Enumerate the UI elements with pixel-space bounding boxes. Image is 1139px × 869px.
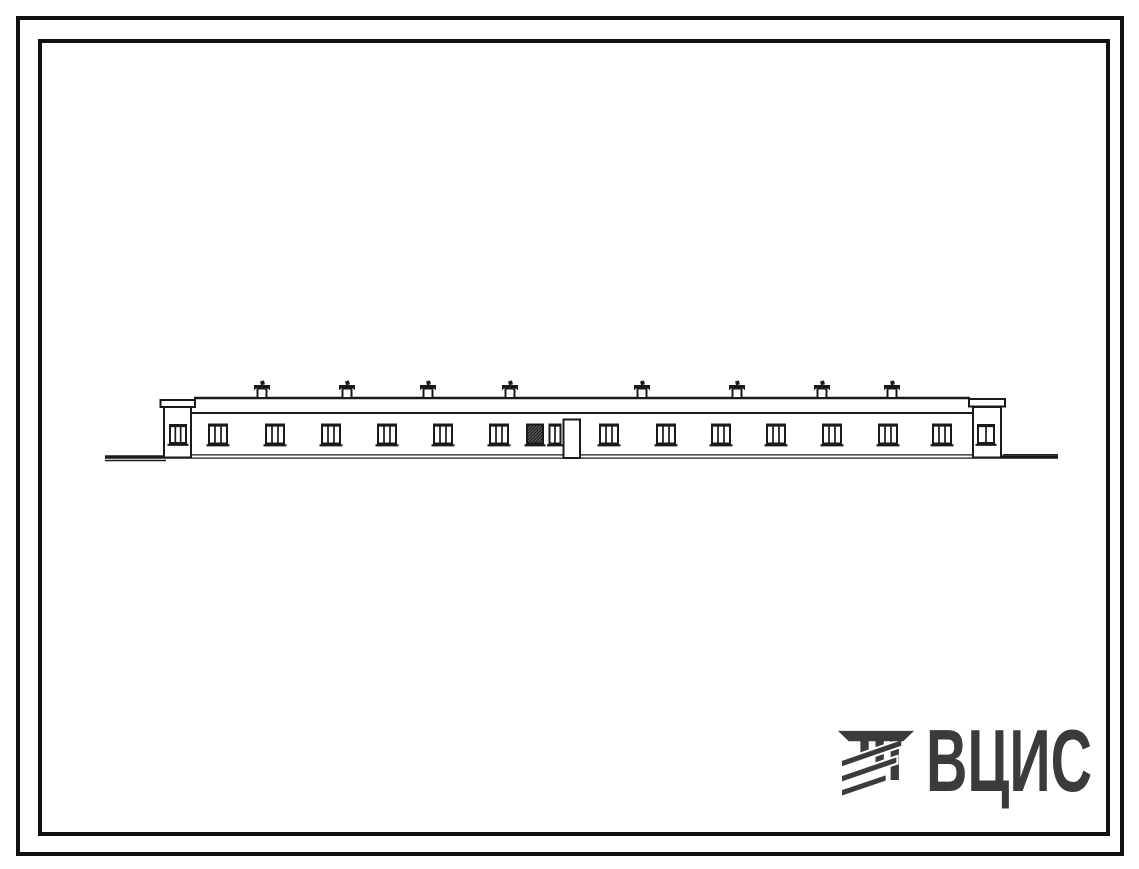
roof-vent-knob bbox=[426, 380, 431, 385]
roof-vent-body bbox=[638, 389, 647, 399]
window bbox=[266, 425, 284, 444]
roof-vent-body bbox=[506, 389, 515, 399]
roof-vent-body bbox=[258, 389, 267, 399]
vcis-logo: ВЦИС bbox=[838, 722, 1098, 812]
window bbox=[434, 425, 452, 444]
roof-vent-body bbox=[424, 389, 433, 399]
window bbox=[879, 425, 897, 444]
roof-vent-knob bbox=[820, 380, 825, 385]
roof-vent-body bbox=[343, 389, 352, 399]
plate: { "page": { "background": "#ffffff", "in… bbox=[0, 0, 1139, 869]
vcis-logo-icon bbox=[838, 729, 914, 797]
window bbox=[490, 425, 508, 444]
right-end-block-cap bbox=[969, 399, 1005, 407]
main-wall bbox=[191, 413, 973, 458]
window bbox=[322, 425, 340, 444]
roof-vent-knob bbox=[260, 380, 265, 385]
left-block-window bbox=[170, 425, 186, 443]
roof-vent-knob bbox=[735, 380, 740, 385]
roof-vent-knob bbox=[890, 380, 895, 385]
entrance-door bbox=[564, 420, 581, 459]
window bbox=[767, 425, 785, 444]
roof-vent-knob bbox=[508, 380, 513, 385]
dark-window bbox=[527, 425, 543, 444]
window bbox=[378, 425, 396, 444]
roof-vent-body bbox=[818, 389, 827, 399]
window bbox=[933, 425, 951, 444]
icon-beam bbox=[838, 731, 914, 741]
roof-vent-body bbox=[888, 389, 897, 399]
window bbox=[209, 425, 227, 444]
drawing-root bbox=[105, 380, 1058, 460]
roof-vent-body bbox=[733, 389, 742, 399]
roof-vent-knob bbox=[345, 380, 350, 385]
vcis-logo-text: ВЦИС bbox=[925, 722, 1097, 804]
logo-icon-shapes bbox=[838, 731, 914, 797]
roof-vent-knob bbox=[640, 380, 645, 385]
window bbox=[823, 425, 841, 444]
left-end-block-cap bbox=[161, 400, 196, 407]
window bbox=[657, 425, 675, 444]
logo-text: ВЦИС bbox=[926, 711, 1092, 810]
window bbox=[600, 425, 618, 444]
window bbox=[712, 425, 730, 444]
